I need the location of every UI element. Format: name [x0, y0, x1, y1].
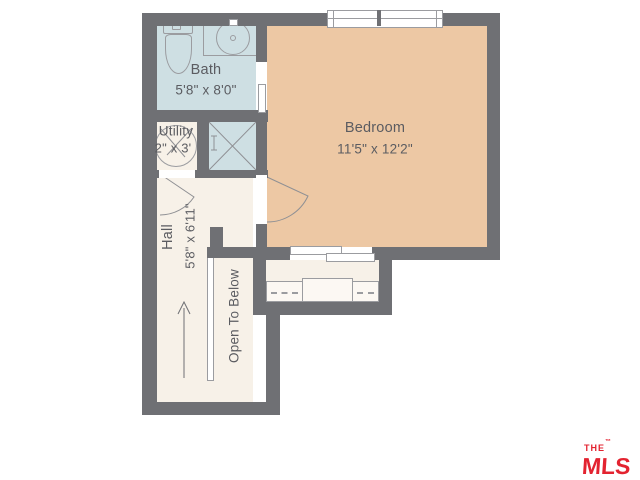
bath-dimensions: 5'8" x 8'0" — [175, 83, 236, 98]
sliding-door-icon-2 — [326, 253, 375, 262]
mls-logo-the: THE — [584, 443, 605, 453]
wall-bottom — [142, 402, 280, 415]
wall-top — [142, 13, 500, 26]
window-icon — [327, 10, 443, 28]
wall-hall-stub — [210, 227, 223, 247]
wall-hall-stair — [207, 247, 253, 258]
shower-valve-icon — [211, 136, 217, 150]
bedroom-label: Bedroom — [345, 120, 405, 136]
open-to-below-label: Open To Below — [227, 269, 242, 363]
trademark-symbol: ™ — [605, 439, 611, 445]
shower-icon — [209, 122, 256, 170]
wall-below-bath — [142, 110, 268, 122]
wall-utility-shower — [197, 122, 209, 170]
wall-stairwell-right — [266, 302, 280, 415]
utility-dimensions: 2" x 3' — [155, 141, 192, 156]
bath-label: Bath — [191, 62, 222, 78]
wall-left — [142, 13, 157, 415]
wall-stair-closet — [253, 247, 266, 315]
utility-label: Utility — [159, 124, 193, 139]
fixture-lines — [0, 0, 640, 480]
pocket-door-icon — [258, 84, 266, 113]
hall-dimensions: 5'8" x 6'11" — [183, 203, 198, 269]
mls-logo: THE™ MLS.COM — [582, 439, 640, 480]
sink-faucet — [229, 19, 238, 26]
window-mullion — [377, 10, 381, 26]
floor-plan: Bath 5'8" x 8'0" Utility 2" x 3' Bedroom… — [0, 0, 640, 480]
mls-logo-mls: MLS — [581, 455, 631, 478]
bedroom-door-swing-icon — [267, 177, 308, 222]
bedroom-dimensions: 11'5" x 12'2" — [337, 142, 413, 157]
bedroom-door-opening — [256, 175, 267, 224]
utility-door-opening — [159, 170, 195, 178]
hall-label: Hall — [160, 224, 176, 250]
up-arrow-icon — [178, 302, 190, 378]
wall-right — [487, 13, 500, 260]
